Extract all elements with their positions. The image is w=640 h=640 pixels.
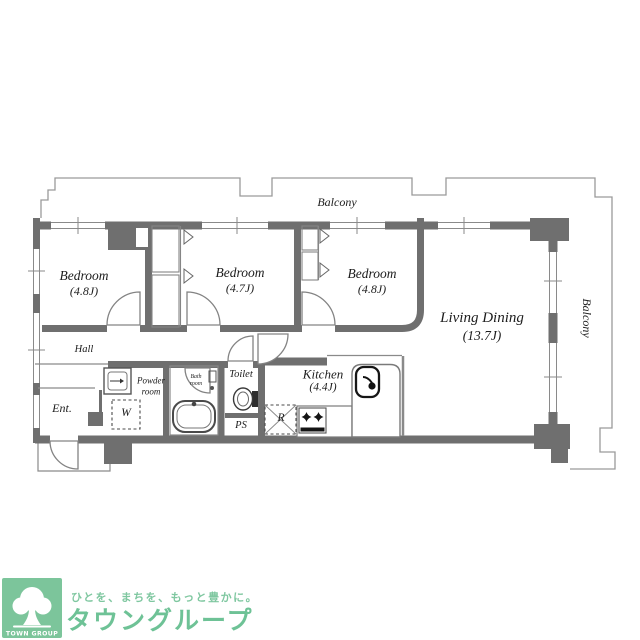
toilet-icon	[234, 388, 259, 410]
town-group-logo: TOWN GROUP	[2, 578, 62, 638]
duct-block	[108, 222, 150, 250]
logo-brand: タウングループ	[66, 601, 254, 637]
sink-icon	[356, 367, 379, 397]
bedroom3-label: Bedroom (4.8J)	[348, 266, 397, 296]
living-dining-label: Living Dining (13.7J)	[440, 310, 524, 344]
bedroom2-door	[187, 292, 220, 325]
kitchen-size: (4.4J)	[303, 382, 343, 396]
refrigerator-label: R	[277, 412, 284, 426]
floorplan-drawing	[0, 0, 640, 640]
bathtub-icon	[173, 401, 215, 432]
bedroom3-size: (4.8J)	[348, 282, 397, 296]
bath-room-label: Bath room	[190, 374, 202, 388]
bedroom2-size: (4.7J)	[216, 281, 265, 295]
floorplan-page: Balcony Balcony Bedroom (4.8J) Bedroom (…	[0, 0, 640, 640]
hall-label: Hall	[75, 344, 94, 356]
toilet-label: Toilet	[229, 369, 253, 381]
bedroom2-label: Bedroom (4.7J)	[216, 265, 265, 295]
washbasin-icon	[104, 368, 131, 394]
entrance-door	[50, 441, 78, 469]
living-dining-size: (13.7J)	[440, 328, 524, 344]
bedroom1-label: Bedroom (4.8J)	[60, 268, 109, 298]
logo-badge-text: TOWN GROUP	[6, 631, 58, 638]
balcony-right-label: Balcony	[580, 298, 594, 337]
bedroom1-size: (4.8J)	[60, 284, 109, 298]
bedroom3-door	[302, 292, 335, 325]
stove-icon	[299, 408, 326, 433]
toilet-door	[228, 336, 253, 361]
entrance-label: Ent.	[52, 401, 72, 415]
bedroom1-door	[107, 292, 140, 325]
washer-label: W	[121, 407, 131, 421]
kitchen-label: Kitchen (4.4J)	[303, 367, 343, 396]
pipe-space-label: PS	[235, 420, 247, 432]
powder-room-label: Powder room	[137, 375, 165, 396]
balcony-top-label: Balcony	[317, 195, 356, 209]
